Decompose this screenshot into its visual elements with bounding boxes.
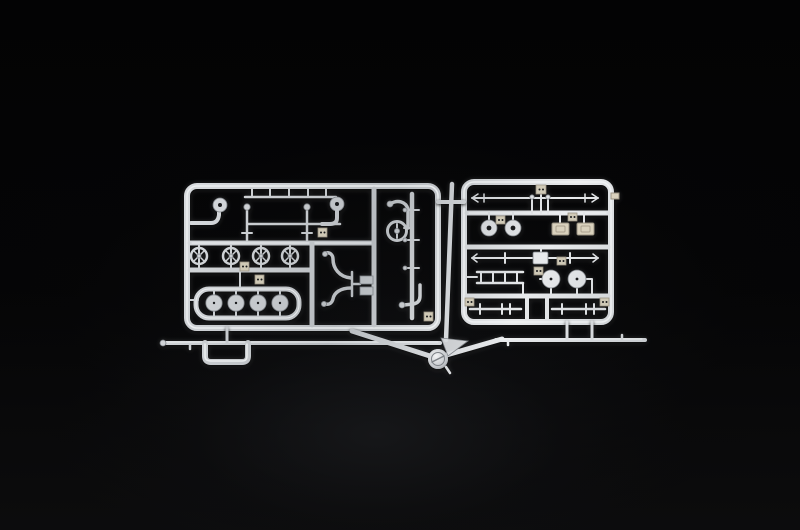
curved-pipe-part-left xyxy=(191,198,227,223)
left-sprue xyxy=(187,186,438,328)
coupling-rod-parts xyxy=(470,304,605,314)
fork-part xyxy=(321,251,373,306)
ladder-part xyxy=(467,272,523,296)
pulley-wheel xyxy=(250,291,266,316)
long-axle-part xyxy=(472,193,619,213)
road-wheel-parts xyxy=(540,270,592,296)
u-bracket-part xyxy=(205,343,248,362)
pulley-wheel xyxy=(228,291,244,316)
photo-stage xyxy=(0,0,800,530)
feed-bar-end xyxy=(160,340,166,346)
valve-wheel xyxy=(191,245,207,270)
valve-wheel xyxy=(282,245,298,270)
pulley-wheel xyxy=(272,291,288,316)
pulley-boat-part xyxy=(190,270,299,318)
elbow-pipe-part xyxy=(399,285,420,308)
fork-pad xyxy=(360,287,373,295)
ring-part xyxy=(388,222,407,241)
axle-end-stub xyxy=(611,193,619,199)
tie-rod-parts xyxy=(245,189,340,224)
fork-pad xyxy=(360,276,373,284)
pulley-wheel xyxy=(206,291,222,316)
second-axle-part xyxy=(472,247,598,264)
sprue-photo xyxy=(0,0,800,530)
valve-wheel xyxy=(223,245,239,270)
right-sprue xyxy=(464,182,619,322)
curved-pipe-part-right xyxy=(322,197,344,224)
inter-frame-runner xyxy=(446,184,452,340)
valve-wheel xyxy=(253,245,269,270)
lever-parts xyxy=(242,204,312,240)
